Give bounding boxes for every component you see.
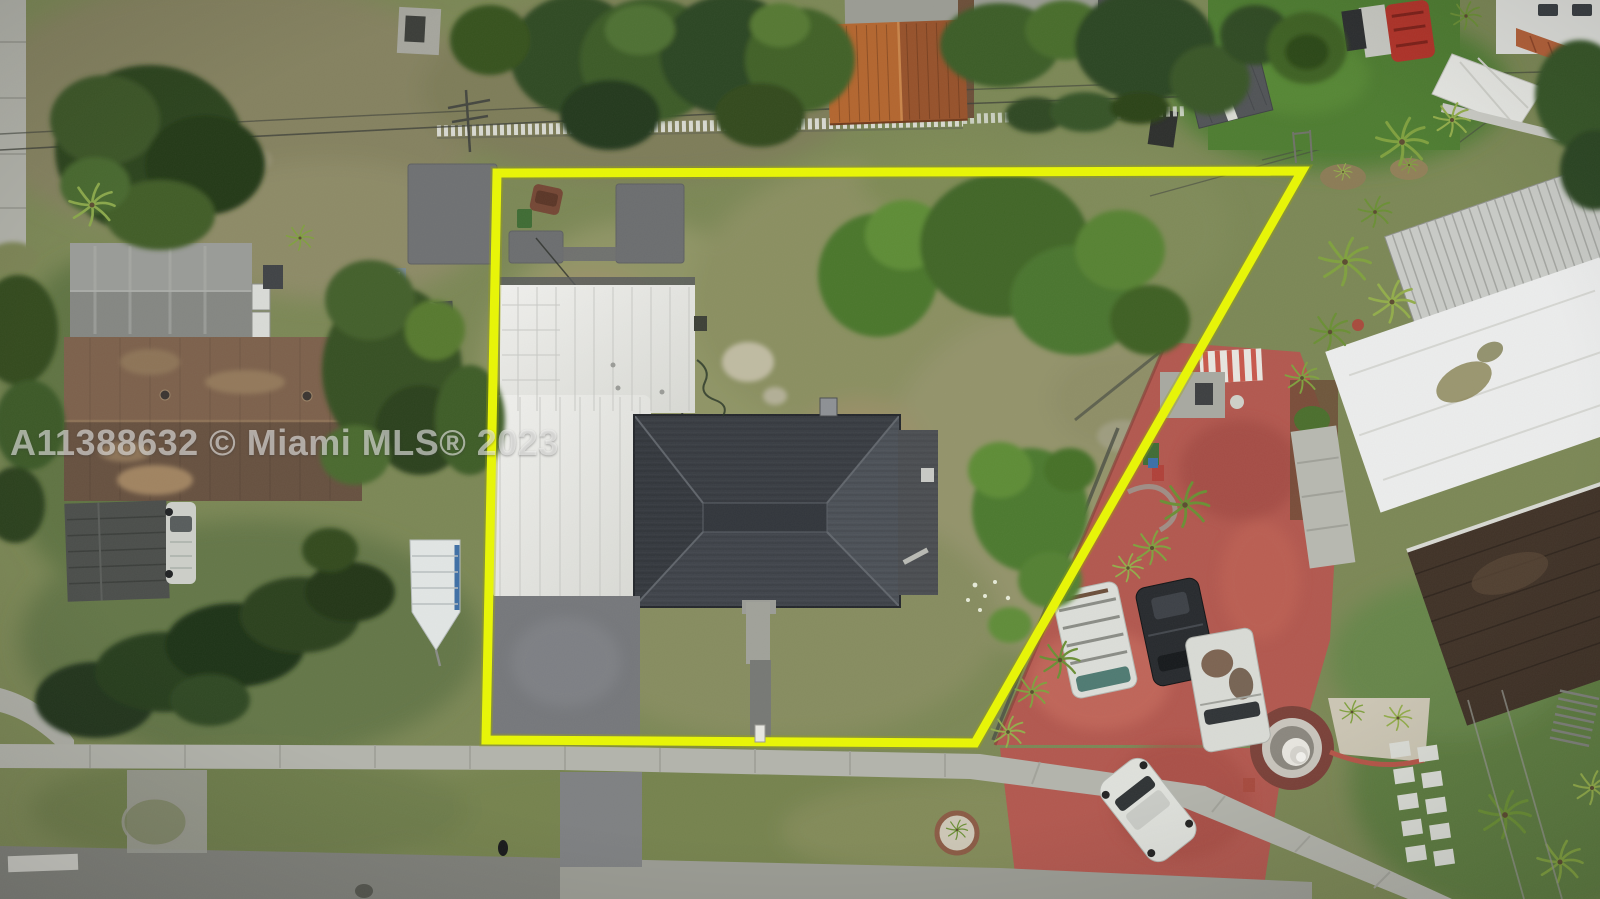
- aerial-photo: A11388632 © Miami MLS® 2023: [0, 0, 1600, 899]
- film-grain: [0, 0, 1600, 899]
- aerial-photo-canvas: [0, 0, 1600, 899]
